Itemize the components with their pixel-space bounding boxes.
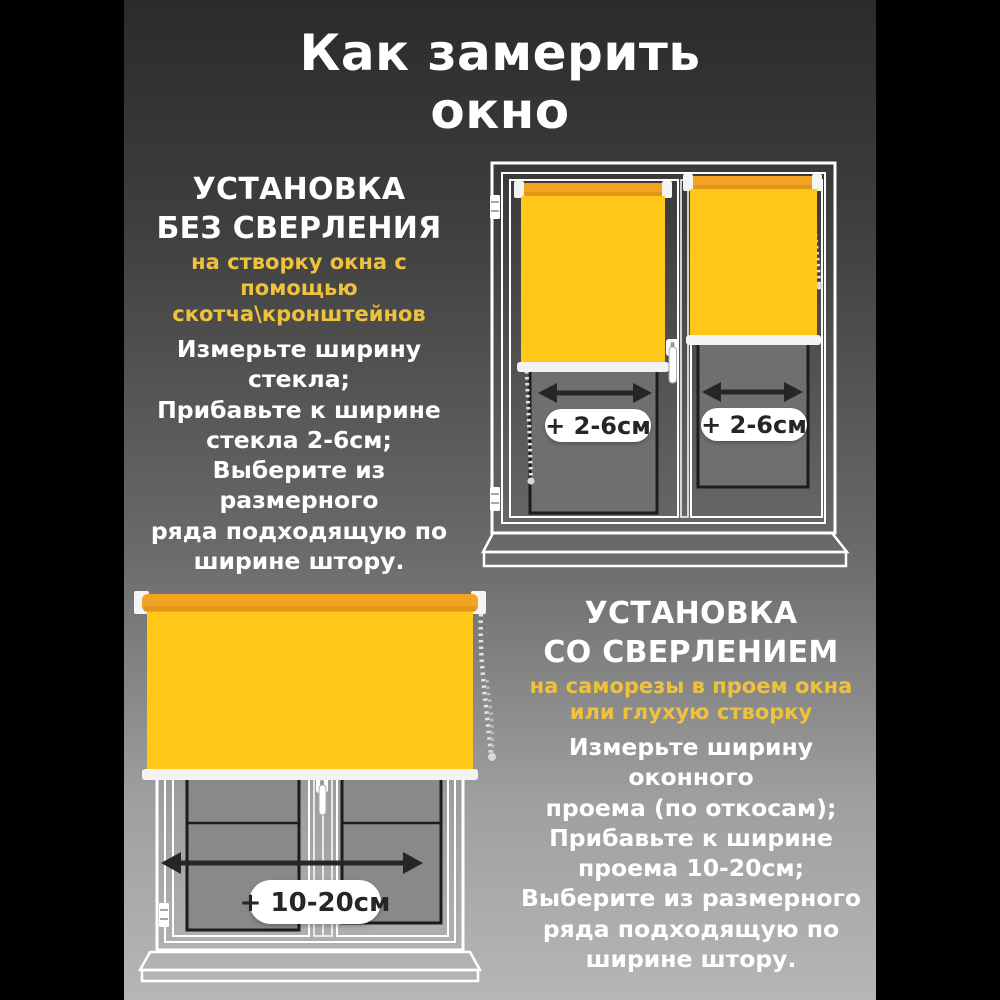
hinge-icon: [490, 195, 500, 219]
blind-tube-shadow: [144, 606, 476, 611]
heading-line: УСТАНОВКА: [132, 170, 466, 209]
body-line: ряда подходящую по: [132, 516, 466, 546]
measure-label-pill: + 2-6см: [701, 408, 807, 441]
blind-bracket: [683, 174, 693, 191]
blind-fabric: [521, 196, 665, 362]
body-line: Измерьте ширину: [132, 334, 466, 364]
body-line: ширине штору.: [132, 546, 466, 576]
page-title-line-1: Как замерить: [124, 24, 876, 82]
section-drill-heading: УСТАНОВКА СО СВЕРЛЕНИЕМ: [495, 594, 887, 672]
poster-background: Как замерить окно УСТАНОВКА БЕЗ СВЕРЛЕНИ…: [124, 0, 876, 1000]
heading-line: СО СВЕРЛЕНИЕМ: [495, 633, 887, 672]
heading-line: БЕЗ СВЕРЛЕНИЯ: [132, 209, 466, 248]
blind-bottom-bar: [142, 769, 478, 780]
blind-fabric: [147, 612, 473, 769]
mullion: [681, 180, 688, 517]
page-title-line-2: окно: [124, 82, 876, 140]
measure-label-pill: + 10-20см: [240, 880, 391, 924]
body-line: стекла 2-6см;: [132, 425, 466, 455]
sash-window-diagram: + 2-6см + 2-6см: [485, 150, 865, 570]
section-drill-body: Измерьте ширину оконного проема (по отко…: [495, 732, 887, 974]
body-line: ширине штору.: [495, 944, 887, 974]
blind-bracket: [514, 181, 524, 198]
chain-end: [528, 478, 535, 485]
blind-tube-shadow: [521, 192, 665, 196]
blind-fabric: [690, 189, 817, 335]
section-drill-subtitle: на саморезы в проем окна или глухую ство…: [495, 673, 887, 725]
window-handle: [316, 777, 328, 815]
infographic-canvas: Как замерить окно УСТАНОВКА БЕЗ СВЕРЛЕНИ…: [0, 0, 1000, 1000]
body-line: Прибавьте к ширине: [495, 823, 887, 853]
body-line: Прибавьте к ширине: [132, 395, 466, 425]
body-line: проема (по откосам);: [495, 793, 887, 823]
blind-bottom-bar: [686, 335, 821, 345]
measure-label: + 10-20см: [240, 888, 391, 918]
heading-line: УСТАНОВКА: [495, 594, 887, 633]
hinge-icon: [159, 903, 169, 927]
window-sill: [483, 533, 847, 566]
blind-chain-loop: [487, 680, 493, 753]
body-line: стекла;: [132, 364, 466, 394]
section-no-drill-subtitle: на створку окна с помощью скотча\кронште…: [132, 249, 466, 327]
subtitle-line: на створку окна с помощью: [132, 249, 466, 301]
section-no-drill: УСТАНОВКА БЕЗ СВЕРЛЕНИЯ на створку окна …: [132, 170, 466, 576]
blind-tube-shadow: [690, 185, 817, 189]
opening-window-diagram: + 10-20см: [130, 585, 490, 985]
hinge-icon: [490, 487, 500, 511]
chain-end: [488, 753, 496, 761]
measure-label-right: + 2-6см: [701, 411, 807, 439]
body-line: оконного: [495, 762, 887, 792]
section-no-drill-body: Измерьте ширину стекла; Прибавьте к шири…: [132, 334, 466, 576]
measure-label-pill: + 2-6см: [545, 409, 651, 442]
blind-bracket: [812, 174, 822, 191]
blind-chain: [481, 614, 491, 755]
roller-blind-large: [134, 591, 496, 780]
body-line: Выберите из: [132, 455, 466, 485]
body-line: Измерьте ширину: [495, 732, 887, 762]
measure-label-left: + 2-6см: [545, 412, 651, 440]
body-line: ряда подходящую по: [495, 914, 887, 944]
blind-bracket: [662, 181, 672, 198]
blind-bottom-bar: [517, 362, 669, 372]
subtitle-line: или глухую створку: [495, 699, 887, 725]
body-line: размерного: [132, 485, 466, 515]
section-drill: УСТАНОВКА СО СВЕРЛЕНИЕМ на саморезы в пр…: [495, 594, 887, 974]
body-line: Выберите из размерного: [495, 883, 887, 913]
subtitle-line: на саморезы в проем окна: [495, 673, 887, 699]
window-sill: [140, 952, 480, 981]
roller-blind-right: [683, 174, 823, 345]
subtitle-line: скотча\кронштейнов: [132, 301, 466, 327]
page-title: Как замерить окно: [124, 24, 876, 140]
section-no-drill-heading: УСТАНОВКА БЕЗ СВЕРЛЕНИЯ: [132, 170, 466, 248]
body-line: проема 10-20см;: [495, 853, 887, 883]
